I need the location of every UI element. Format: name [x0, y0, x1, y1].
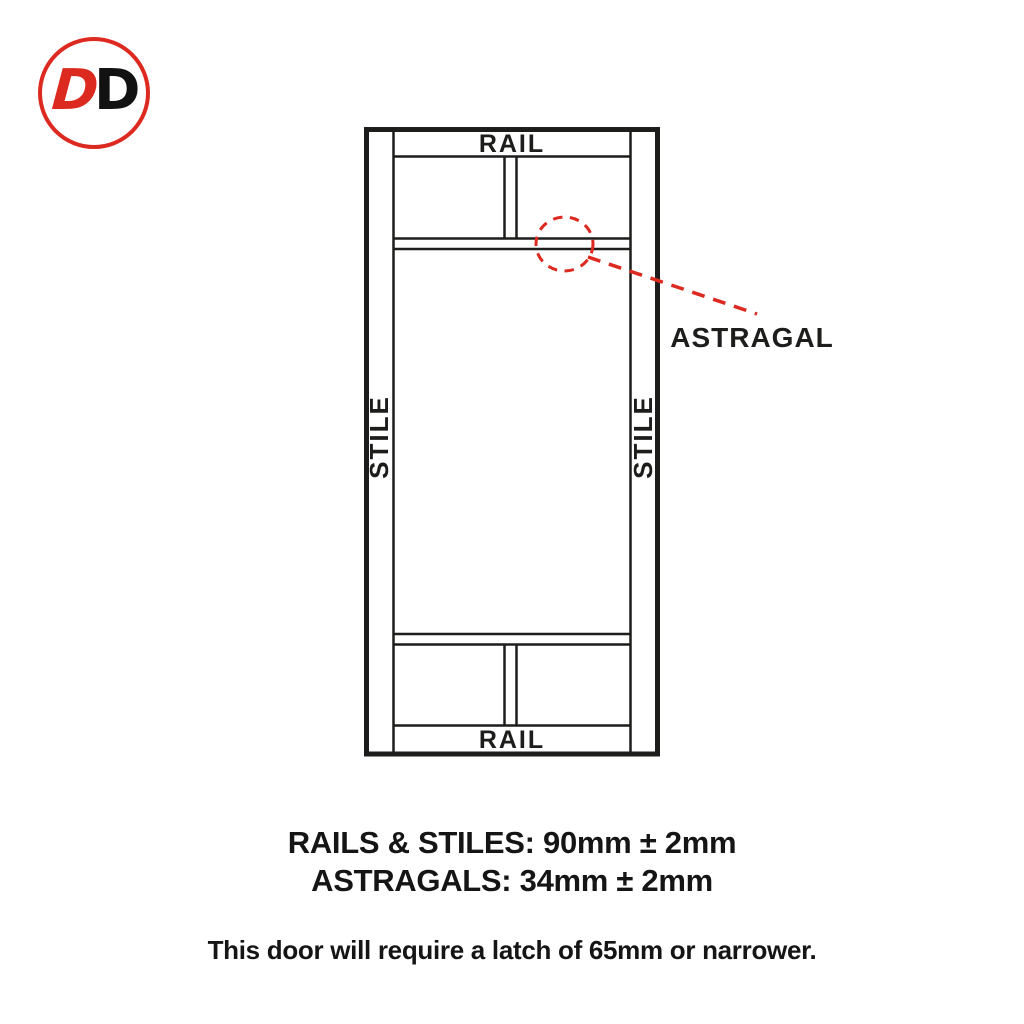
astragal-label: ASTRAGAL	[652, 324, 852, 352]
right-stile-label: STILE	[629, 367, 657, 507]
left-stile-label: STILE	[365, 367, 393, 507]
latch-note: This door will require a latch of 65mm o…	[0, 935, 1024, 965]
bottom-rail-label: RAIL	[412, 726, 612, 754]
spec-lines: RAILS & STILES: 90mm ± 2mm ASTRAGALS: 34…	[0, 824, 1024, 900]
door-outline	[367, 130, 658, 755]
top-rail-label: RAIL	[412, 130, 612, 158]
rails-stiles-spec: RAILS & STILES: 90mm ± 2mm	[0, 824, 1024, 862]
astragal-callout-line	[588, 257, 757, 314]
astragals-spec: ASTRAGALS: 34mm ± 2mm	[0, 862, 1024, 900]
astragal-callout-circle	[536, 217, 593, 271]
door-spec-page: D D RAIL RAIL STILE STILE ASTRAGAL RAILS…	[0, 0, 1024, 1024]
